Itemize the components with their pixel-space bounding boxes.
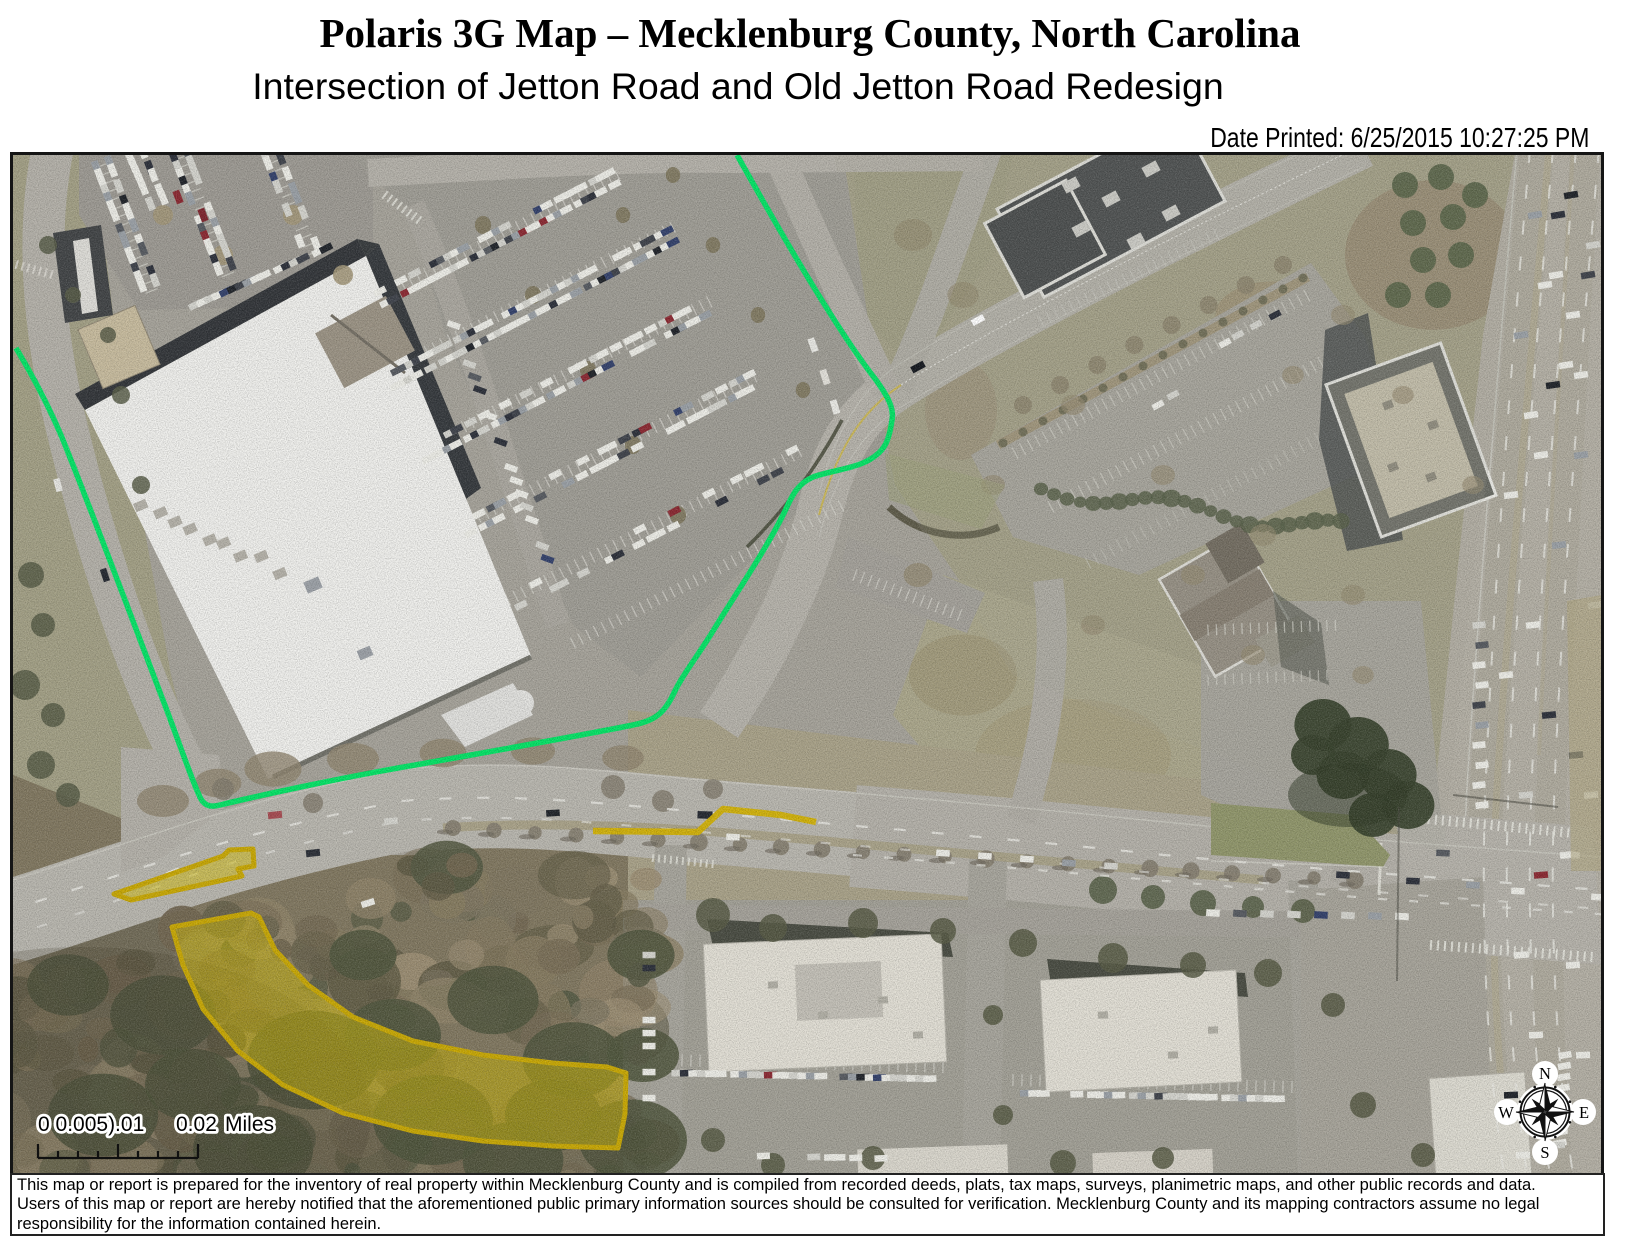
svg-text:0.02: 0.02 <box>176 1113 217 1136</box>
svg-text:Miles: Miles <box>225 1113 274 1136</box>
svg-text:W: W <box>1498 1103 1514 1122</box>
svg-text:S: S <box>1540 1143 1549 1162</box>
svg-text:E: E <box>1579 1103 1589 1122</box>
svg-text:N: N <box>1539 1064 1551 1083</box>
svg-text:0 0.005).01: 0 0.005).01 <box>38 1113 144 1136</box>
